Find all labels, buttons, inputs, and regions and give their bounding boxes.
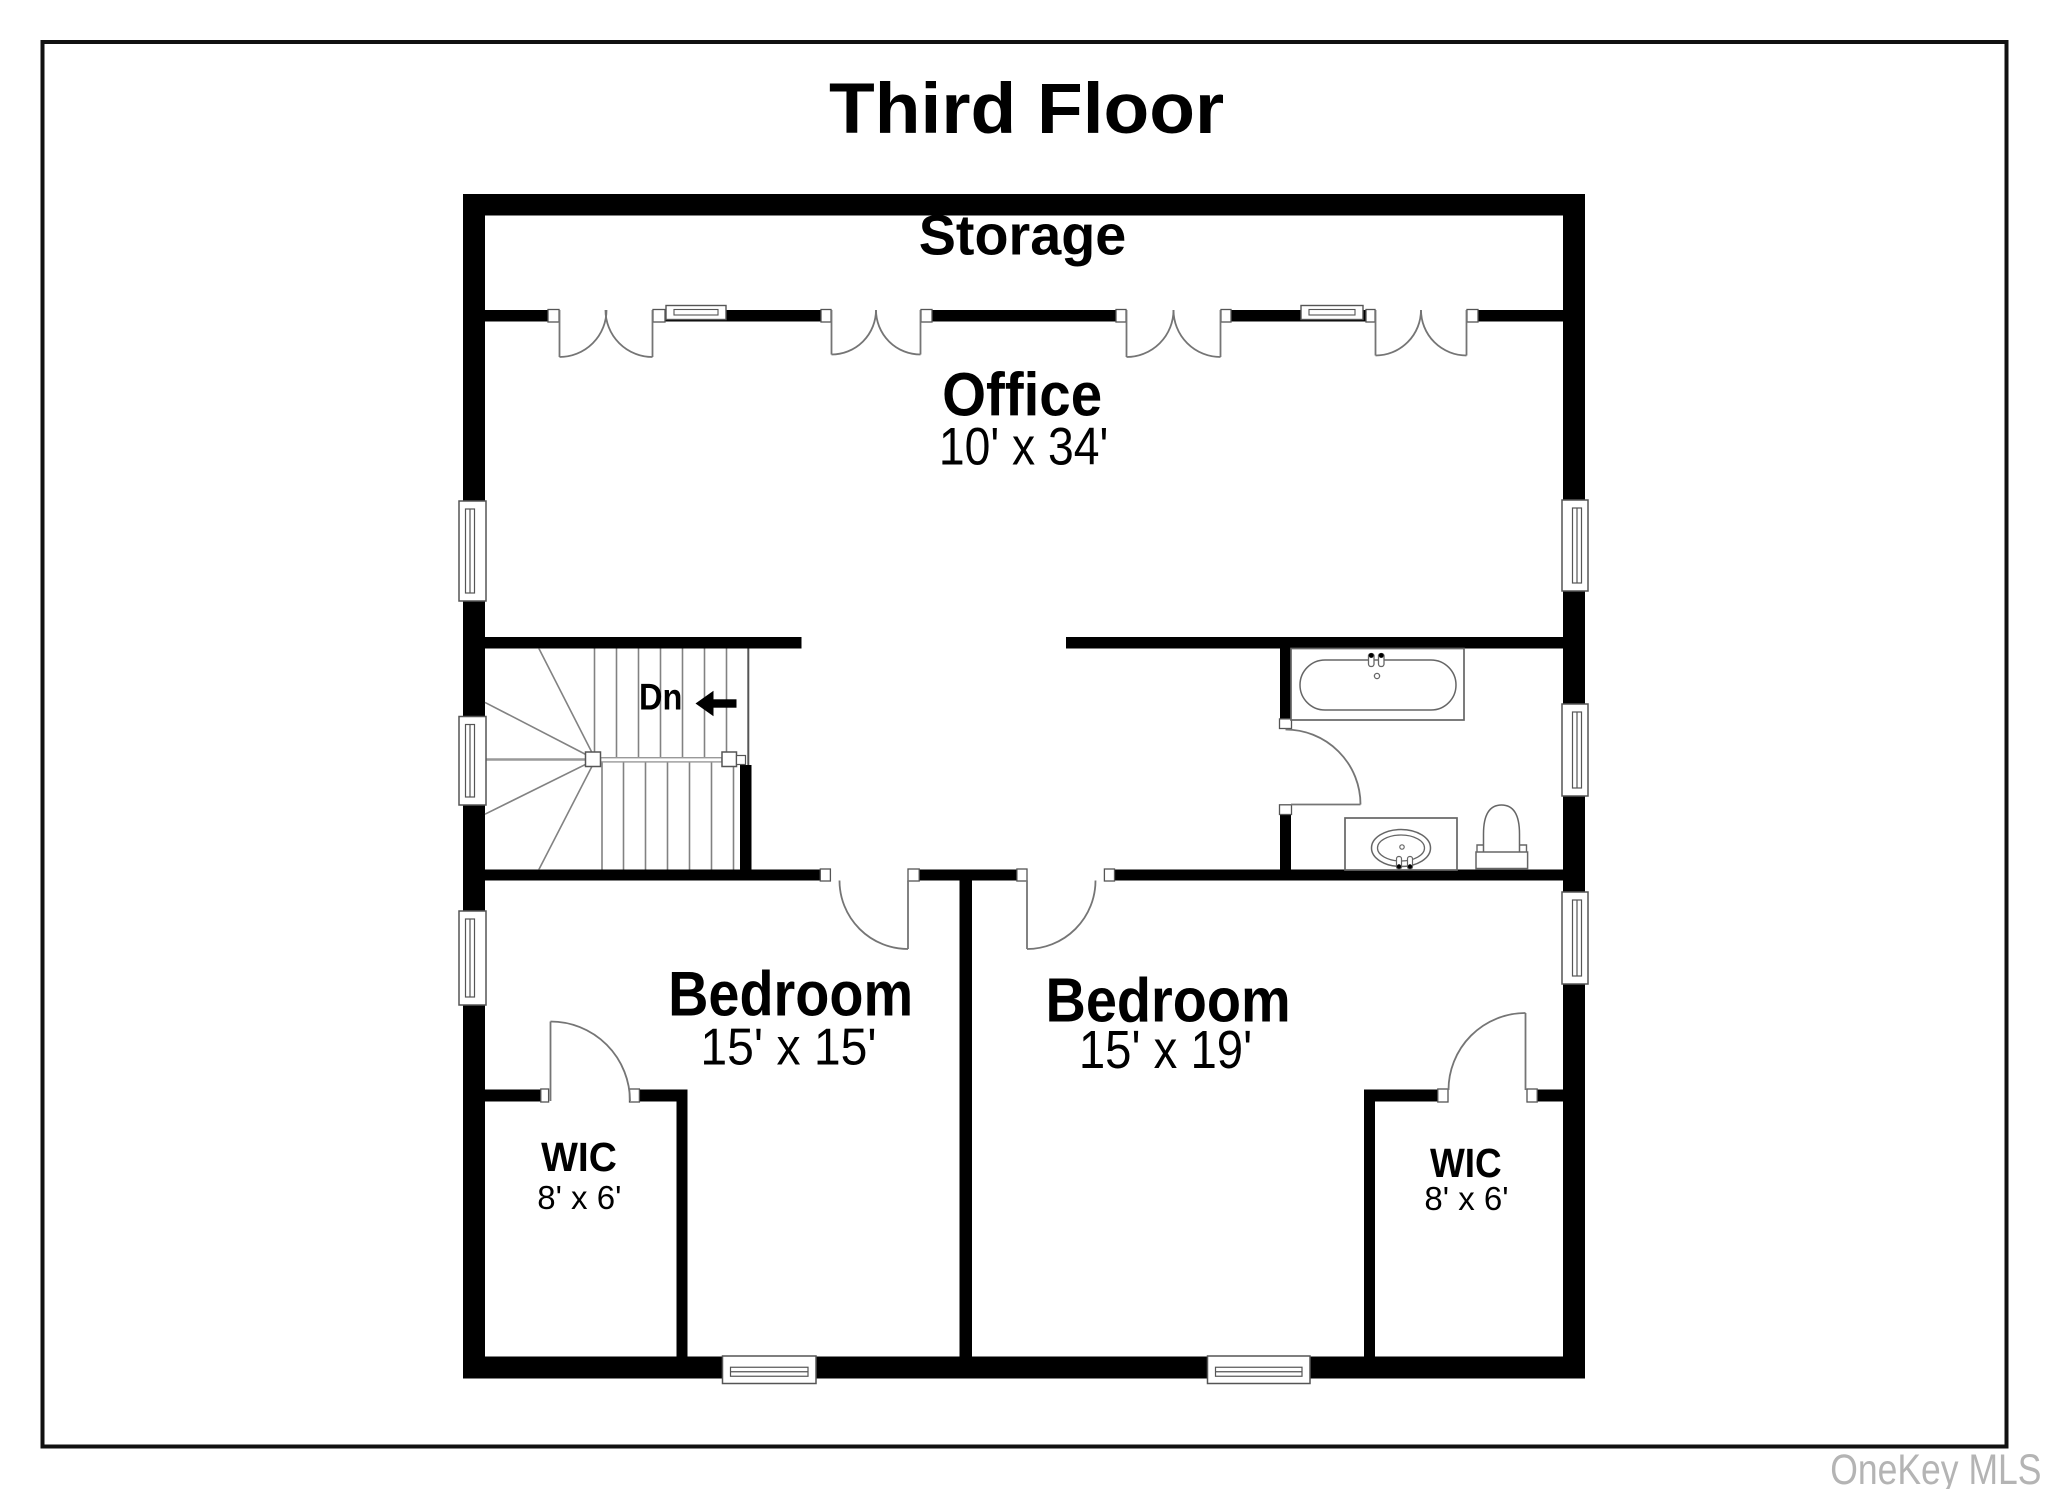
svg-text:10' x 34': 10' x 34': [939, 417, 1108, 477]
svg-text:8' x 6': 8' x 6': [537, 1179, 621, 1216]
svg-text:Storage: Storage: [919, 203, 1127, 267]
svg-text:Dn: Dn: [639, 678, 682, 718]
svg-text:15' x 19': 15' x 19': [1079, 1019, 1252, 1079]
svg-text:15' x 15': 15' x 15': [700, 1018, 876, 1076]
svg-text:8' x 6': 8' x 6': [1424, 1180, 1508, 1217]
svg-text:OneKey MLS: OneKey MLS: [1830, 1447, 2041, 1489]
svg-text:Third Floor: Third Floor: [829, 69, 1224, 149]
svg-text:WIC: WIC: [541, 1135, 617, 1180]
